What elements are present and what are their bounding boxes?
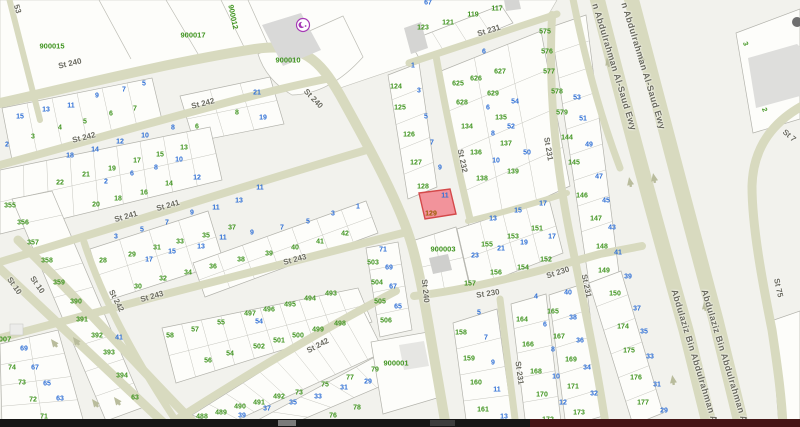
direction-arrow-icon xyxy=(669,375,677,386)
building-small-left xyxy=(10,324,23,335)
bottom-edge-bar xyxy=(0,419,800,427)
bottom-bar-maroon-segment xyxy=(530,419,800,427)
mosque-icon xyxy=(297,19,310,32)
map-canvas[interactable]: 3456768222119171513201816143553563573583… xyxy=(0,0,800,427)
highlighted-parcel-unit-number: 11 xyxy=(441,193,448,200)
highlighted-parcel-plot-number: 129 xyxy=(425,211,437,218)
building-900001 xyxy=(399,341,429,370)
bottom-bar-chip xyxy=(430,420,455,426)
bottom-bar-chip xyxy=(278,420,296,426)
direction-arrow-icon xyxy=(626,176,635,187)
